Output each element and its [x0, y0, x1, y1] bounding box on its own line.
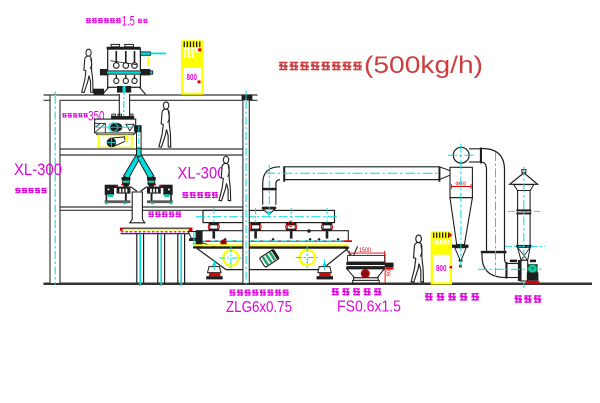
svg-text:XL-300: XL-300	[178, 164, 226, 183]
svg-text:800: 800	[187, 72, 198, 82]
svg-text:1500: 1500	[359, 248, 372, 254]
svg-text:FS0.6x1.5: FS0.6x1.5	[337, 299, 401, 316]
svg-text:800: 800	[436, 263, 447, 273]
svg-text:ZLG6x0.75: ZLG6x0.75	[226, 299, 292, 316]
svg-text:(500kg/h): (500kg/h)	[364, 52, 483, 79]
svg-text:1.5: 1.5	[122, 14, 135, 29]
svg-text:XL-300: XL-300	[14, 160, 62, 179]
